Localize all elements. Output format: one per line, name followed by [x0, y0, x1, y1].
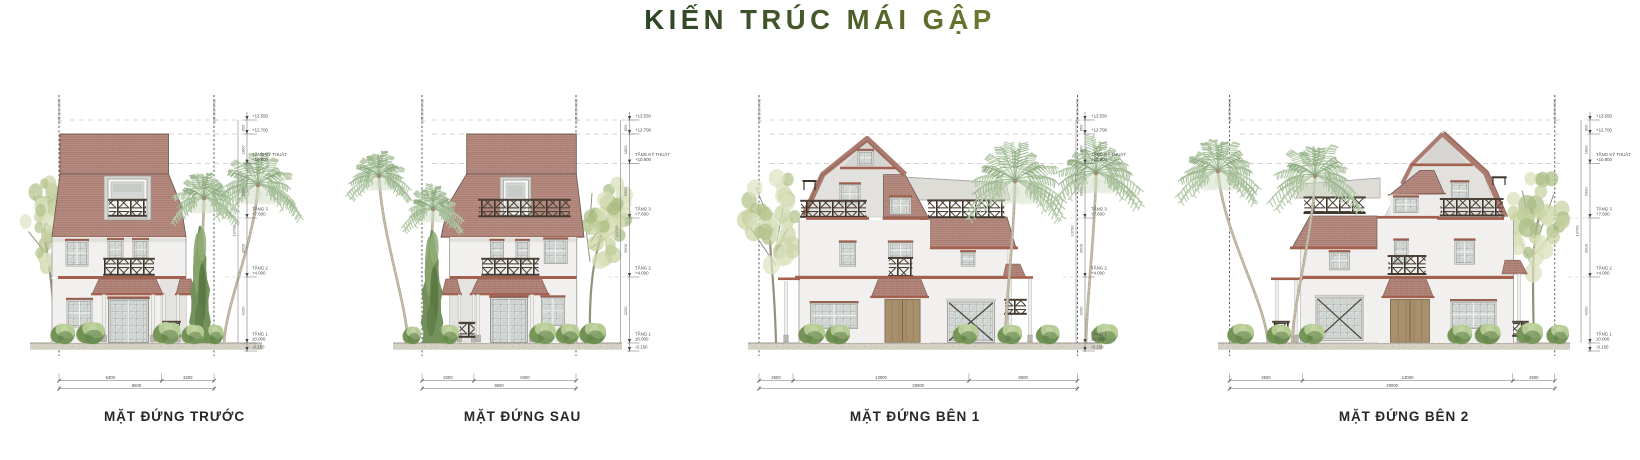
svg-text:+7.600: +7.600: [252, 212, 266, 217]
svg-text:±0.000: ±0.000: [1596, 337, 1610, 342]
svg-text:3600: 3600: [1079, 243, 1084, 253]
svg-text:6300: 6300: [520, 375, 530, 380]
svg-text:±0.000: ±0.000: [635, 337, 649, 342]
svg-text:13700: 13700: [232, 225, 237, 237]
svg-text:RANH GIỚI ĐẤT: RANH GIỚI ĐẤT: [420, 99, 425, 123]
svg-text:+12.700: +12.700: [1596, 128, 1613, 133]
svg-text:RANH GIỚI ĐẤT: RANH GIỚI ĐẤT: [1227, 99, 1232, 123]
svg-text:KIẾN TRÚC MÁI GẬP: KIẾN TRÚC MÁI GẬP: [644, 4, 996, 35]
svg-text:+12.700: +12.700: [1091, 128, 1108, 133]
svg-text:20000: 20000: [1386, 383, 1398, 388]
svg-text:8000: 8000: [1019, 375, 1029, 380]
svg-text:+4.000: +4.000: [252, 271, 266, 276]
svg-text:+4.000: +4.000: [1091, 271, 1105, 276]
svg-text:4200: 4200: [1584, 306, 1589, 316]
svg-text:13700: 13700: [614, 225, 619, 237]
svg-text:1800: 1800: [1079, 145, 1084, 155]
svg-text:4200: 4200: [241, 306, 246, 316]
svg-text:3300: 3300: [1079, 187, 1084, 197]
svg-text:RANH GIỚI ĐẤT: RANH GIỚI ĐẤT: [574, 99, 579, 123]
svg-text:MẶT ĐỨNG SAU: MẶT ĐỨNG SAU: [464, 409, 581, 424]
svg-text:3600: 3600: [241, 243, 246, 253]
svg-text:+13.550: +13.550: [1596, 114, 1613, 119]
svg-text:20000: 20000: [912, 383, 924, 388]
svg-text:RANH GIỚI ĐẤT: RANH GIỚI ĐẤT: [1553, 99, 1558, 123]
svg-text:1800: 1800: [241, 145, 246, 155]
svg-text:3300: 3300: [623, 187, 628, 197]
svg-text:+10.900: +10.900: [1596, 157, 1613, 162]
svg-text:850: 850: [623, 124, 628, 131]
svg-text:850: 850: [241, 124, 246, 131]
svg-text:MẶT ĐỨNG BÊN 2: MẶT ĐỨNG BÊN 2: [1339, 409, 1469, 424]
svg-text:RANH GIỚI ĐẤT: RANH GIỚI ĐẤT: [757, 99, 762, 123]
svg-text:+7.600: +7.600: [1596, 212, 1610, 217]
svg-text:+7.600: +7.600: [635, 212, 649, 217]
svg-text:3200: 3200: [443, 375, 453, 380]
svg-text:+12.700: +12.700: [252, 128, 269, 133]
svg-text:RANH GIỚI ĐẤT: RANH GIỚI ĐẤT: [1075, 99, 1080, 123]
svg-text:9500: 9500: [494, 383, 504, 388]
svg-text:RANH GIỚI ĐẤT: RANH GIỚI ĐẤT: [57, 99, 62, 123]
svg-text:+13.550: +13.550: [252, 114, 269, 119]
svg-text:3300: 3300: [1584, 187, 1589, 197]
svg-text:2500: 2500: [771, 375, 781, 380]
svg-text:13700: 13700: [1070, 225, 1075, 237]
svg-text:13000: 13000: [1402, 375, 1414, 380]
svg-text:+4.000: +4.000: [1596, 271, 1610, 276]
svg-text:+12.700: +12.700: [635, 128, 652, 133]
svg-text:+13.550: +13.550: [1091, 114, 1108, 119]
svg-text:+7.600: +7.600: [1091, 212, 1105, 217]
svg-text:±0.000: ±0.000: [1091, 337, 1105, 342]
svg-text:850: 850: [1584, 124, 1589, 131]
svg-text:4500: 4500: [1261, 375, 1271, 380]
svg-text:+10.900: +10.900: [1091, 157, 1108, 162]
svg-text:1800: 1800: [623, 145, 628, 155]
svg-text:MẶT ĐỨNG BÊN 1: MẶT ĐỨNG BÊN 1: [850, 409, 980, 424]
svg-text:3300: 3300: [241, 187, 246, 197]
svg-text:4200: 4200: [623, 306, 628, 316]
svg-text:+4.000: +4.000: [635, 271, 649, 276]
svg-text:3200: 3200: [183, 375, 193, 380]
svg-text:3600: 3600: [1584, 243, 1589, 253]
svg-text:4200: 4200: [1079, 306, 1084, 316]
svg-text:13700: 13700: [1575, 225, 1580, 237]
svg-text:-0.150: -0.150: [1596, 345, 1609, 350]
svg-text:6300: 6300: [106, 375, 116, 380]
svg-text:-0.150: -0.150: [635, 345, 648, 350]
svg-text:-0.150: -0.150: [252, 345, 265, 350]
svg-text:±0.000: ±0.000: [252, 337, 266, 342]
svg-text:9500: 9500: [132, 383, 142, 388]
svg-text:3600: 3600: [623, 243, 628, 253]
svg-text:+10.900: +10.900: [635, 157, 652, 162]
svg-text:850: 850: [1079, 124, 1084, 131]
svg-text:MẶT ĐỨNG TRƯỚC: MẶT ĐỨNG TRƯỚC: [104, 409, 245, 424]
svg-text:+10.900: +10.900: [252, 157, 269, 162]
svg-text:-0.150: -0.150: [1091, 345, 1104, 350]
svg-text:RANH GIỚI ĐẤT: RANH GIỚI ĐẤT: [212, 99, 217, 123]
svg-text:13000: 13000: [875, 375, 887, 380]
svg-text:+13.550: +13.550: [635, 114, 652, 119]
svg-text:1800: 1800: [1584, 145, 1589, 155]
svg-text:2600: 2600: [1529, 375, 1539, 380]
